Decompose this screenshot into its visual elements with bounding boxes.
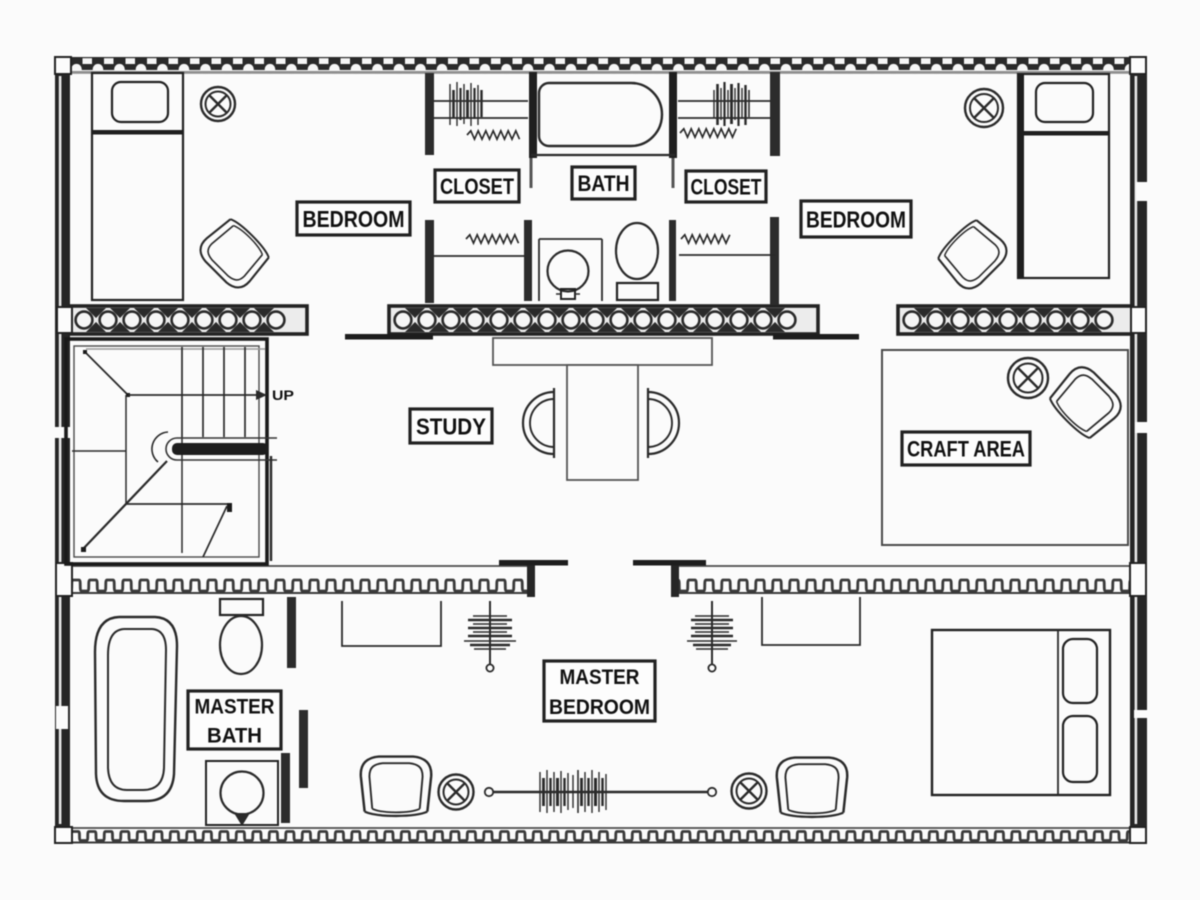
svg-text:STUDY: STUDY bbox=[416, 414, 486, 440]
svg-text:CLOSET: CLOSET bbox=[691, 175, 762, 200]
svg-text:MASTER: MASTER bbox=[560, 666, 640, 689]
svg-text:UP: UP bbox=[272, 388, 294, 403]
svg-text:BEDROOM: BEDROOM bbox=[303, 206, 405, 232]
svg-text:BEDROOM: BEDROOM bbox=[549, 696, 650, 719]
svg-text:CRAFT AREA: CRAFT AREA bbox=[907, 437, 1025, 462]
svg-text:BEDROOM: BEDROOM bbox=[806, 207, 906, 233]
svg-text:CLOSET: CLOSET bbox=[440, 174, 514, 199]
svg-text:MASTER: MASTER bbox=[195, 695, 275, 718]
svg-text:BATH: BATH bbox=[578, 171, 630, 196]
svg-text:BATH: BATH bbox=[207, 724, 262, 747]
